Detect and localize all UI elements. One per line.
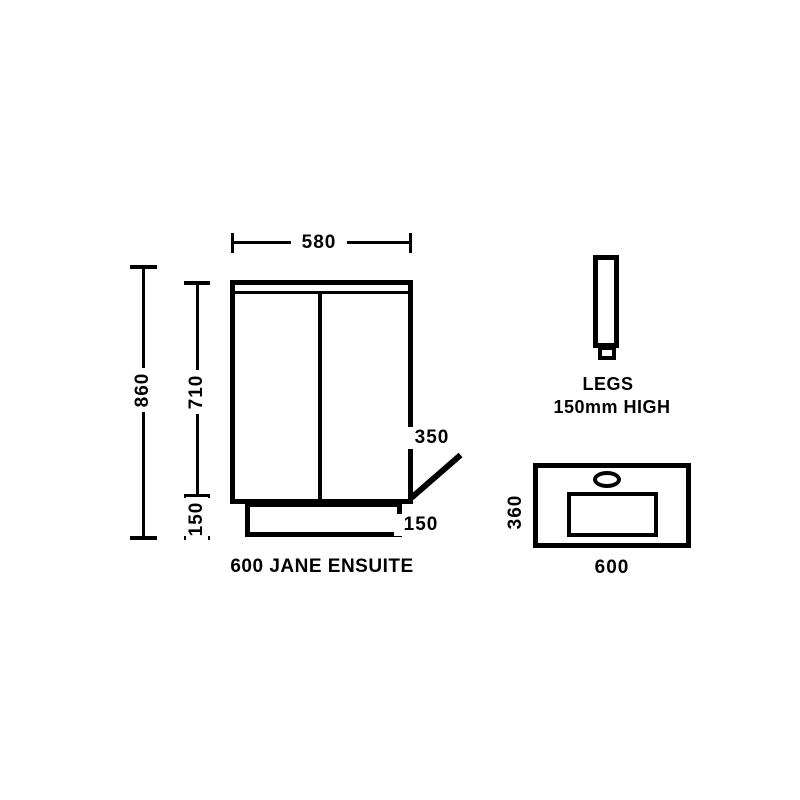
dim-360-label: 360 — [505, 490, 527, 534]
leg-body — [593, 255, 619, 348]
dim-350-label: 350 — [405, 427, 459, 449]
dim-150-left-label: 150 — [186, 497, 208, 541]
leg-foot — [598, 346, 616, 360]
dim-580-label: 580 — [291, 232, 347, 254]
dim-580-tick-right — [409, 233, 412, 253]
depth-diagonal-line — [408, 453, 463, 501]
dim-860-label: 860 — [132, 368, 154, 412]
dim-150-right-label: 150 — [394, 514, 448, 536]
legs-label-line2: 150mm HIGH — [550, 397, 674, 418]
technical-drawing-canvas: 580 350 150 860 710 150 600 JANE ENSUITE… — [0, 0, 800, 800]
dim-860-top-bar — [130, 265, 157, 269]
dim-580-tick-left — [231, 233, 234, 253]
front-view-title: 600 JANE ENSUITE — [230, 556, 414, 578]
dim-600-label: 600 — [585, 557, 639, 579]
dim-860-bottom-bar — [130, 536, 157, 540]
dim-710-top-bar — [184, 281, 210, 285]
plinth — [245, 502, 402, 537]
tap-hole-icon — [593, 471, 621, 488]
cabinet-door-divider — [318, 294, 322, 502]
basin-inner-rect — [567, 492, 658, 537]
dim-710-label: 710 — [186, 370, 208, 414]
legs-label-line1: LEGS — [546, 374, 670, 395]
